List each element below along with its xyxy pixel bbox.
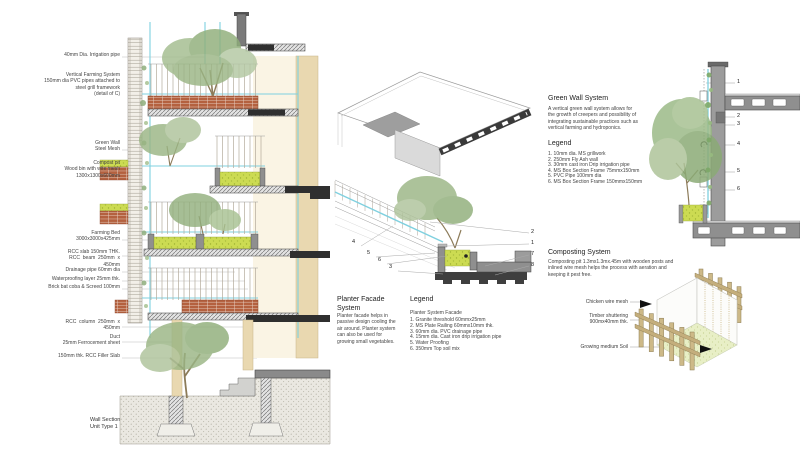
greenwall-legend-title: Legend (548, 140, 571, 149)
callout-granite: 1 (531, 241, 534, 246)
wall-section-drawing (95, 8, 365, 444)
farming-bed-soil (204, 237, 251, 249)
legend-item: 6. MS Box Section Frame 150mmx150mm (548, 180, 642, 186)
planter-title: Planter Facade System (337, 296, 384, 314)
composting-title: Composting System (548, 249, 611, 258)
callout-railing: 2 (531, 230, 534, 235)
rcc-column (296, 56, 318, 358)
callout-7: 7 (531, 252, 534, 257)
callout-wproof: 5 (367, 251, 370, 256)
greenwall-body: A vertical green wall system allows for … (548, 106, 638, 132)
planter-legend-title: Legend (410, 296, 433, 305)
farming-bed-soil (154, 237, 196, 249)
label-timber-shutter: Timber shuttering 900mx40mm thk. (589, 313, 628, 326)
greenwall-title: Green Wall System (548, 95, 608, 104)
callout-grillwork: 1 (737, 80, 740, 85)
ground (120, 378, 330, 444)
legend-item: 6. 350mm Top soil mix (410, 347, 501, 353)
ann-brick-bat-coba: Brick bat coba & Screed 100mm (48, 284, 120, 290)
greenwall-legend-list: 1. 10mm dia. MS grillwork 2. 250mm Fly A… (548, 152, 642, 186)
planter-body: Planter facade helps in passive design c… (337, 313, 396, 345)
dim-tag (248, 45, 274, 51)
planter-wall (260, 168, 265, 186)
callout-soil: 6 (378, 258, 381, 263)
ann-duct: Duct 25mm Ferrocement sheet (63, 334, 120, 347)
green-wall-detail-drawing (640, 55, 800, 255)
dim-tag (248, 110, 285, 116)
drawing-sheet: 40mm Dia. Irrigation pipe Vertical Farmi… (0, 0, 800, 450)
composting-drawing (630, 265, 765, 385)
bed-wall (148, 234, 154, 249)
callout-pvc: 5 (737, 169, 740, 174)
tree-ground (140, 322, 229, 398)
ann-vertical-farming: Vertical Farming System 150mm dia PVC pi… (44, 72, 120, 98)
ann-irrigation-pipe: 40mm Dia. Irrigation pipe (64, 52, 120, 58)
top-slab (725, 94, 800, 110)
callout-drip: 4 (352, 240, 355, 245)
planter-axon-slab (338, 72, 530, 176)
foundation-column (169, 396, 183, 424)
arrow-marker (640, 300, 652, 308)
dim-tag (246, 315, 330, 322)
floor-slab (144, 249, 298, 256)
label-chicken-wire: Chicken wire mesh (586, 299, 628, 305)
ground-column (243, 320, 253, 370)
bed-wall (251, 234, 258, 249)
brick-wall (128, 38, 142, 323)
wall-section-title: Wall Section Unit Type 1 (90, 417, 120, 431)
green-wall-planter (679, 205, 707, 223)
planter-wall (215, 168, 220, 186)
planter-cross-section (435, 244, 531, 284)
footing (157, 424, 195, 436)
floor-slab (210, 186, 298, 193)
bottom-slab (693, 221, 800, 238)
callout-drain: 3 (389, 265, 392, 270)
foundation-column (261, 378, 271, 423)
footing (249, 423, 283, 436)
planter-facade-drawing (335, 70, 540, 295)
ann-drainage-pipe: Drainage pipe 60mm dia (66, 267, 120, 273)
callout-dripline: 3 (737, 122, 740, 127)
dim-tag (290, 251, 330, 258)
ground-slab (255, 370, 330, 378)
tree-mid-floor (139, 117, 201, 166)
wall-block (716, 112, 725, 123)
stairs (220, 378, 255, 396)
label-growing-medium: Growing medium Soil (580, 344, 628, 350)
callout-flyash: 2 (737, 114, 740, 119)
planter-brick-band (182, 300, 258, 313)
planter-soil (220, 172, 260, 186)
ann-green-wall-mesh: Green Wall Steel Mesh (95, 140, 120, 153)
ann-compost-pit: Compost pit Wood bin with wire mesh 1300… (65, 160, 121, 179)
dim-tag (285, 186, 330, 193)
ann-rcc-column: RCC column 250mm x 450mm (66, 319, 120, 332)
ann-rcc-slab-beam: RCC slab 150mm THK. RCC beam 250mm x 450… (68, 249, 120, 268)
planter-legend-list: 1. Granite threshold 60mmx25mm 2. MS Pla… (410, 318, 501, 353)
planter-brick-band (148, 96, 258, 109)
callout-8: 8 (531, 263, 534, 268)
ann-filler-slab: 150mm thk. RCC Filler Slab (58, 353, 120, 359)
ann-waterproofing: Waterproofing layer 25mm thk. (52, 276, 120, 282)
callout-frame75: 4 (737, 142, 740, 147)
planter-legend-subtitle: Planter System Facade (410, 310, 462, 316)
ann-farming-bed: Farming Bed 3000x3000x425mm (76, 230, 120, 243)
slab-step (310, 193, 330, 199)
callout-frame150: 6 (737, 187, 740, 192)
bed-wall (196, 234, 204, 249)
